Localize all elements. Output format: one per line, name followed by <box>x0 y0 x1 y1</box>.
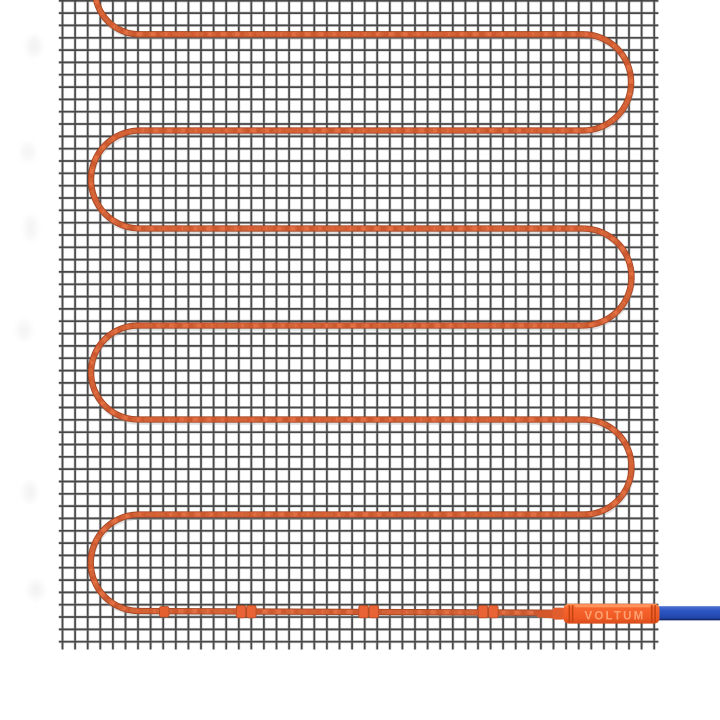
svg-text:VOLTUM: VOLTUM <box>585 611 646 623</box>
